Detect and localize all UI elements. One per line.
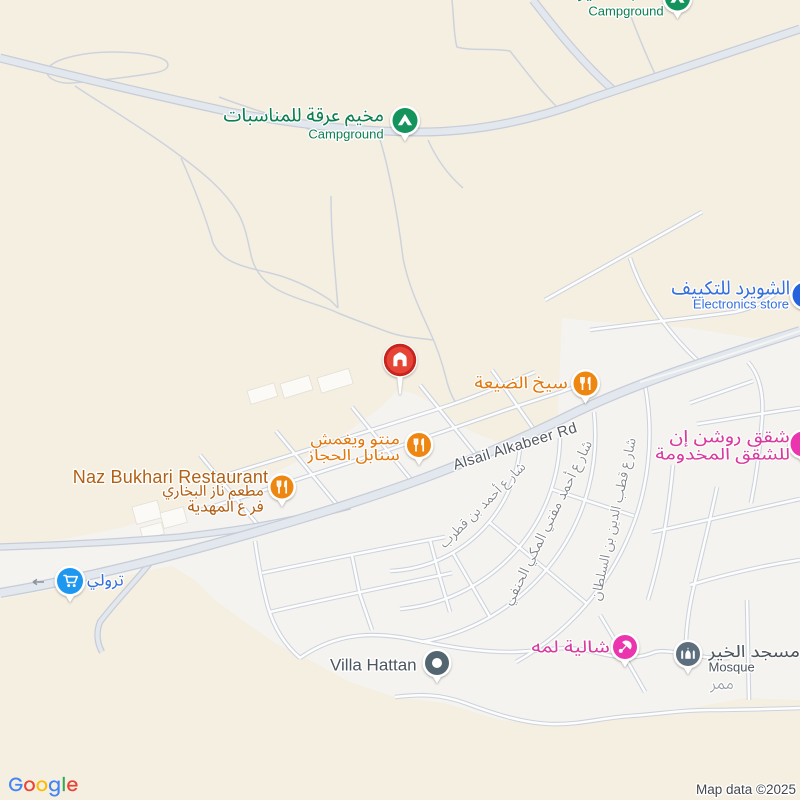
svg-text:Campground: Campground — [588, 4, 663, 19]
svg-text:Villa Hattan: Villa Hattan — [330, 656, 417, 675]
svg-text:Map data ©2025: Map data ©2025 — [696, 782, 796, 797]
svg-text:Campground: Campground — [308, 127, 383, 142]
svg-text:Electronics store: Electronics store — [693, 297, 789, 312]
svg-text:Naz Bukhari Restaurant: Naz Bukhari Restaurant — [73, 467, 269, 487]
svg-text:Mosque: Mosque — [709, 660, 755, 675]
